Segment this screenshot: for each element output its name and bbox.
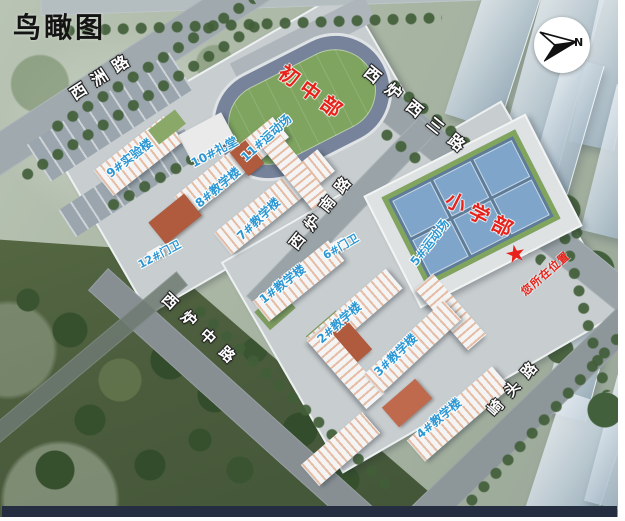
- marker-star-icon: ★: [503, 240, 529, 268]
- bottom-margin: [0, 517, 625, 521]
- north-label: N: [574, 36, 583, 49]
- page-title: 鸟瞰图: [13, 14, 106, 42]
- right-margin: [618, 0, 625, 521]
- aerial-rendering: 西洲路 西炉西三路 西炉南路 西炉中路 崎头路 初中部 小学部 1#教学楼 2#…: [0, 0, 625, 521]
- compass: N: [533, 16, 591, 74]
- bottom-bar: [2, 506, 617, 517]
